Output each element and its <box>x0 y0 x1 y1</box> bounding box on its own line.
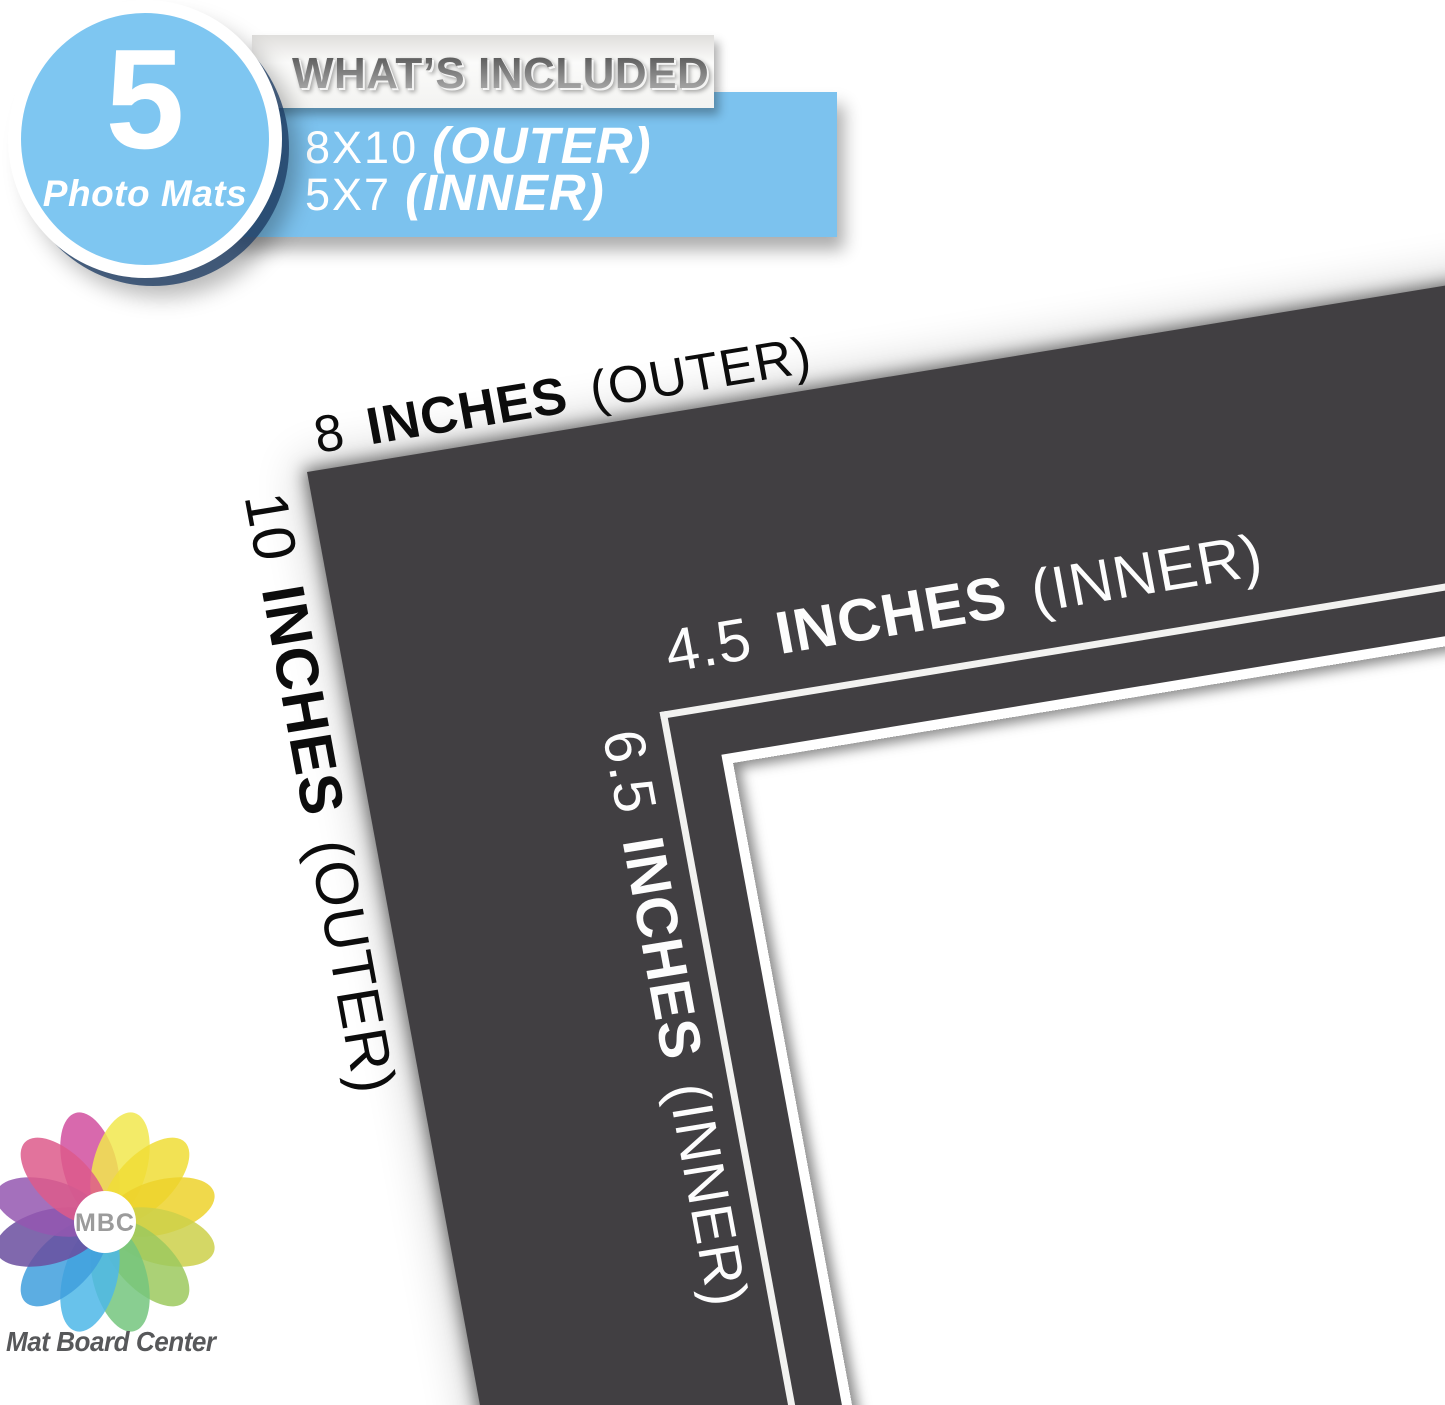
dimension-qualifier: (OUTER) <box>585 326 816 419</box>
badge-count: 5 <box>21 29 269 171</box>
photo-mats-count-badge: 5 Photo Mats <box>8 0 282 278</box>
included-sizes-list: 8X10 (OUTER) 5X7 (INNER) <box>305 116 652 210</box>
product-infographic: 8 INCHES (OUTER) 10 INCHES (OUTER) 4.5 I… <box>0 0 1445 1405</box>
included-size-row: 5X7 (INNER) <box>305 163 652 210</box>
dimension-value: 4.5 <box>660 605 757 685</box>
included-size-row: 8X10 (OUTER) <box>305 116 652 163</box>
dimension-unit: INCHES <box>249 581 358 821</box>
mbc-flower-logo-icon: MBC <box>0 1100 230 1350</box>
label-top-outer-dimension: 8 INCHES (OUTER) <box>310 327 817 463</box>
label-left-outer-dimension: 10 INCHES (OUTER) <box>231 488 426 1187</box>
dimension-value: 10 <box>232 488 311 566</box>
size-inner: 5X7 <box>305 169 391 221</box>
dimension-value: 8 <box>309 403 349 465</box>
dimension-qualifier: (OUTER) <box>296 835 409 1099</box>
included-sizes-banner: 8X10 (OUTER) 5X7 (INNER) <box>225 92 837 237</box>
mat-board: 8 INCHES (OUTER) 10 INCHES (OUTER) 4.5 I… <box>307 213 1445 1405</box>
badge-label: Photo Mats <box>21 173 269 215</box>
mbc-monogram: MBC <box>75 1209 135 1237</box>
size-inner-qualifier: (INNER) <box>405 163 605 222</box>
dimension-unit: INCHES <box>770 563 1012 666</box>
whats-included-plate: WHAT’S INCLUDED <box>252 35 714 108</box>
whats-included-title: WHAT’S INCLUDED <box>292 49 709 99</box>
dimension-value: 6.5 <box>590 725 669 818</box>
brand-name: Mat Board Center <box>6 1326 216 1358</box>
dimension-unit: INCHES <box>362 366 572 456</box>
dimension-qualifier: (INNER) <box>1025 521 1268 625</box>
size-outer: 8X10 <box>305 122 418 174</box>
